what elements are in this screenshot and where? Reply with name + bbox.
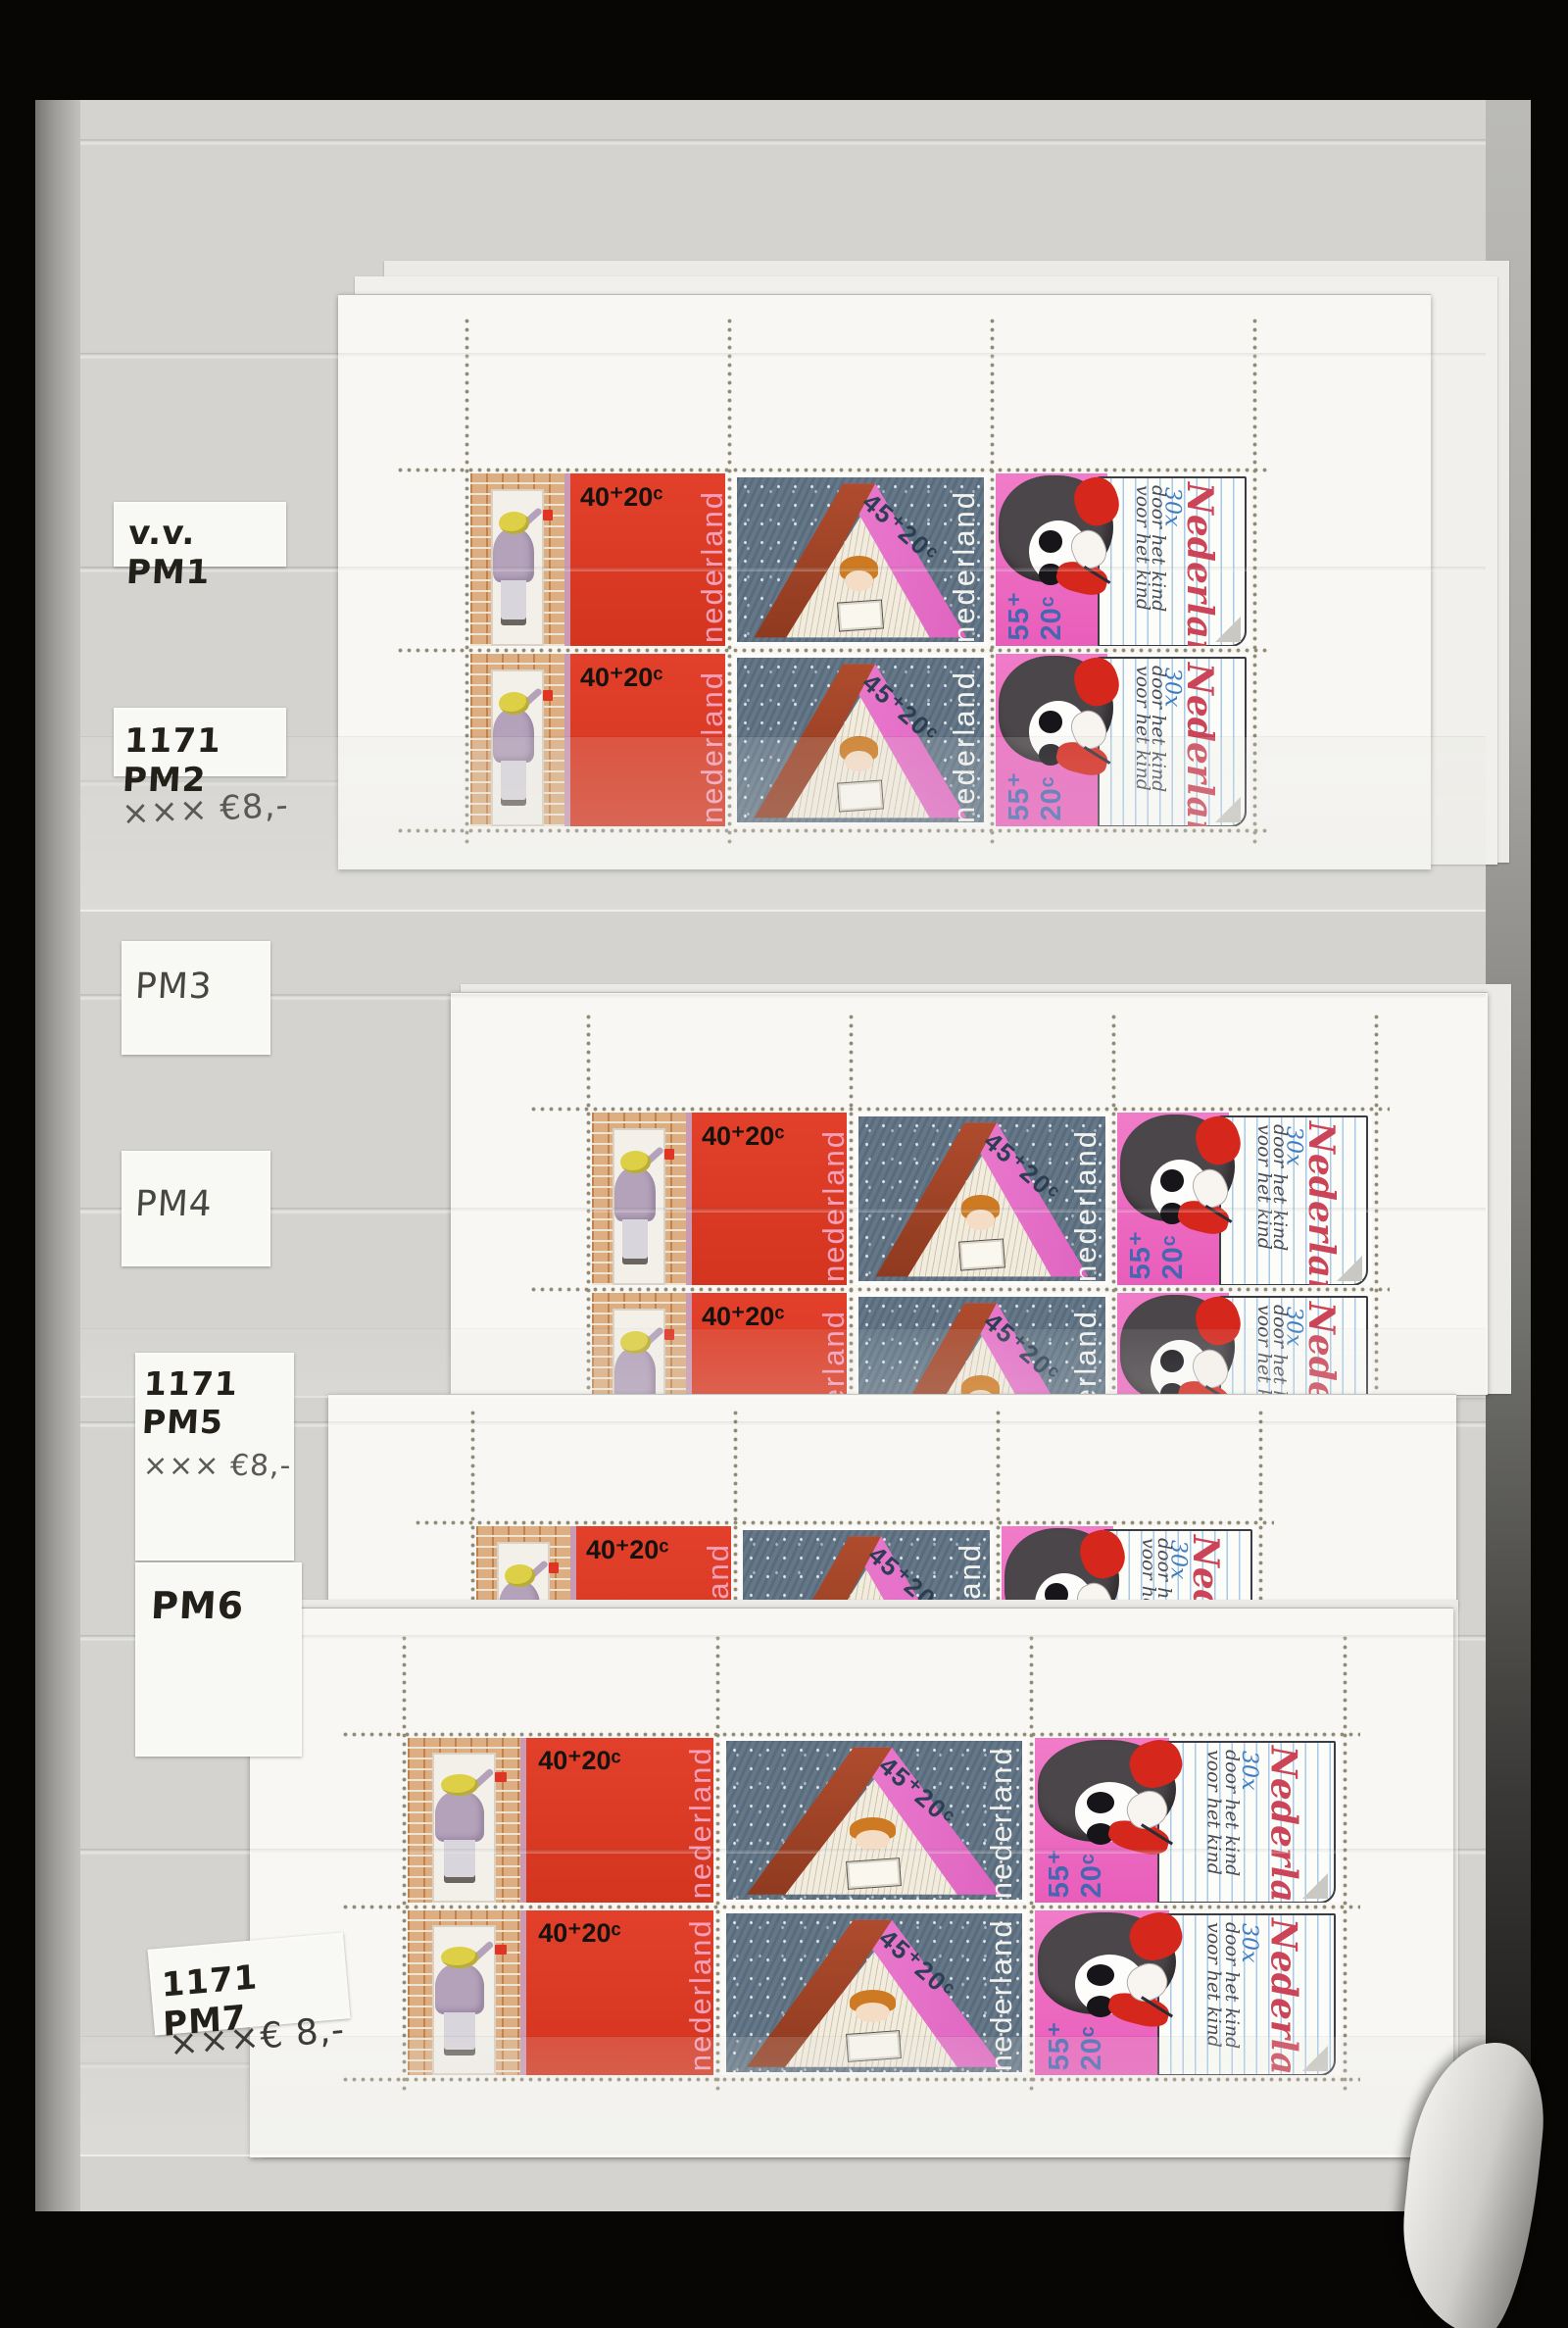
perforation-line xyxy=(396,647,1270,654)
slogan-door-het-kind: door het kind xyxy=(1221,1750,1243,1898)
denomination-text: 40⁺20ᶜ xyxy=(580,663,663,693)
stamp-55plus20: Nederland 30x door het kind voor het kin… xyxy=(1002,1526,1256,1609)
country-script-text: Nederland xyxy=(1300,1121,1342,1276)
country-script-text: Nederland xyxy=(1263,1746,1304,1894)
denomination-top: 55⁺ xyxy=(1043,1812,1076,1898)
glassine-strip-seam xyxy=(80,994,1486,999)
label-pm3-text: PM3 xyxy=(134,966,214,1007)
denomination-text: 40⁺20ᶜ xyxy=(580,482,663,513)
country-text: nederland xyxy=(683,1741,713,1899)
stamp-45plus20: 45⁺20ᶜ nederland xyxy=(739,1526,994,1609)
glassine-strip-seam xyxy=(80,567,1486,571)
denomination-top: 55⁺ xyxy=(1124,1190,1157,1280)
denomination-text: 40⁺20ᶜ xyxy=(702,1302,785,1332)
country-text: nederland xyxy=(984,1741,1019,1899)
stamp-40plus20: 40⁺20ᶜ nederland xyxy=(408,1738,713,1903)
denomination-text: 40⁺20ᶜ xyxy=(538,1746,621,1776)
glassine-strip-seam xyxy=(80,139,1486,144)
perforation-line xyxy=(529,1106,1390,1113)
child-legs xyxy=(444,1840,474,1883)
stamp-40plus20: 40⁺20ᶜ nederland xyxy=(476,1526,731,1609)
label-pm5: 1171 PM5 ××× €8,- xyxy=(135,1353,294,1560)
perforation-line xyxy=(341,1904,1360,1910)
perforation-line xyxy=(469,1409,476,1609)
child-eye-left xyxy=(1039,711,1061,733)
country-text: nederland xyxy=(947,477,982,643)
child-legs xyxy=(622,1219,648,1264)
perforation-line xyxy=(529,1286,1390,1293)
glassine-strip-seam xyxy=(80,1208,1486,1213)
slogan-voor-het-kind: voor het kind xyxy=(1202,1750,1224,1898)
denomination-text: 40⁺20ᶜ xyxy=(702,1121,785,1152)
open-reading-book xyxy=(837,600,884,632)
perforation-line xyxy=(1028,1634,1035,2095)
slogan-voor-het-kind: voor het kind xyxy=(1138,1538,1159,1609)
child-hair xyxy=(441,1947,477,1968)
child-hair xyxy=(620,1151,651,1173)
child-legs xyxy=(501,580,526,625)
price-note-pm5: ××× €8,- xyxy=(142,1449,292,1483)
stamp-55plus20: Nederland 30x door het kind voor het kin… xyxy=(996,473,1250,646)
stamp-45plus20: 45⁺20ᶜ nederland xyxy=(721,1738,1027,1903)
red-panel: 40⁺20ᶜ nederland xyxy=(564,473,725,646)
stamp-40plus20: 40⁺20ᶜ nederland xyxy=(470,473,725,646)
label-pm3: PM3 xyxy=(122,941,270,1055)
red-panel: 40⁺20ᶜ nederland xyxy=(686,1113,847,1285)
child-eye-left xyxy=(1039,530,1061,553)
child-body xyxy=(614,1167,656,1221)
child-body xyxy=(435,1963,484,2014)
paper-folded-corner xyxy=(1302,1873,1328,1899)
child-body xyxy=(493,528,534,582)
denomination-bottom: 20ᶜ xyxy=(1157,1190,1190,1280)
denomination-text: 55⁺ 20ᶜ xyxy=(1124,1190,1190,1280)
red-doorbell xyxy=(543,510,553,520)
child-hair xyxy=(499,512,529,534)
red-doorbell xyxy=(664,1149,674,1160)
red-doorbell xyxy=(495,1772,507,1782)
child-face xyxy=(856,1830,889,1850)
label-pm1-text: v.v. PM1 xyxy=(125,514,288,592)
denomination-bottom: 20ᶜ xyxy=(1076,1812,1108,1898)
glassine-strip-overlay xyxy=(80,737,1486,912)
country-text: nederland xyxy=(1068,1116,1103,1282)
denomination-top: 55⁺ xyxy=(1003,551,1036,641)
country-script-text: Nederland xyxy=(1185,1535,1226,1609)
perforation-line xyxy=(396,467,1270,473)
perforation-line xyxy=(1257,1409,1264,1609)
child-hair xyxy=(441,1774,477,1796)
country-script-text: Nederland xyxy=(1179,482,1220,637)
perforation-line xyxy=(401,1634,408,2095)
open-reading-book xyxy=(846,1857,902,1890)
red-panel: 40⁺20ᶜ nederland xyxy=(520,1738,713,1903)
denomination-text: 55⁺ 20ᶜ xyxy=(1043,1812,1108,1898)
stamp-55plus20: Nederland 30x door het kind voor het kin… xyxy=(1117,1113,1372,1285)
child-face xyxy=(856,2003,889,2022)
stockbook-photo: 40⁺20ᶜ nederland 45⁺20ᶜ nederland Nederl… xyxy=(0,0,1568,2328)
glassine-strip-seam xyxy=(80,353,1486,358)
label-pm4: PM4 xyxy=(122,1151,270,1266)
denomination-text: 40⁺20ᶜ xyxy=(538,1918,621,1949)
label-pm6-text: PM6 xyxy=(150,1584,245,1627)
perforation-line xyxy=(732,1409,739,1609)
label-pm6: PM6 xyxy=(135,1562,302,1757)
country-text: nederland xyxy=(695,477,725,643)
label-pm4-text: PM4 xyxy=(134,1184,214,1224)
red-doorbell xyxy=(543,690,553,701)
glassine-strip-overlay xyxy=(80,2037,1486,2156)
red-panel: 40⁺20ᶜ nederland xyxy=(570,1526,731,1609)
red-doorbell xyxy=(495,1945,507,1955)
open-reading-book xyxy=(958,1239,1005,1271)
slogan-voor-het-kind: voor het kind xyxy=(1253,1124,1275,1279)
child-body xyxy=(435,1791,484,1842)
album-spine-edge xyxy=(35,100,80,2211)
label-pm2: 1171 PM2 xyxy=(114,708,286,776)
slogan-voor-het-kind: voor het kind xyxy=(1132,485,1153,640)
country-text: nederland xyxy=(953,1530,988,1609)
label-pm1: v.v. PM1 xyxy=(114,502,286,567)
stamp-45plus20: 45⁺20ᶜ nederland xyxy=(733,473,988,646)
perforation-line xyxy=(341,1731,1360,1738)
denomination-text: 40⁺20ᶜ xyxy=(586,1535,669,1565)
country-text: nederland xyxy=(816,1116,847,1282)
denomination-text: 55⁺ 20ᶜ xyxy=(1003,551,1068,641)
stamp-45plus20: 45⁺20ᶜ nederland xyxy=(855,1113,1109,1285)
perforation-line xyxy=(1342,1634,1348,2095)
denomination-bottom: 20ᶜ xyxy=(1036,551,1068,641)
child-face xyxy=(845,570,873,591)
perforation-line xyxy=(995,1409,1002,1609)
child-hair xyxy=(505,1564,535,1587)
red-doorbell xyxy=(549,1562,559,1573)
glassine-strip-seam xyxy=(80,1849,1486,1854)
perforation-line xyxy=(714,1634,721,2095)
child-hair xyxy=(499,692,529,715)
child-eye-left xyxy=(1160,1169,1183,1192)
country-text: nederland xyxy=(701,1530,731,1609)
stamp-40plus20: 40⁺20ᶜ nederland xyxy=(592,1113,847,1285)
label-pm5-text: 1171 PM5 xyxy=(141,1364,296,1441)
perforation-line xyxy=(414,1519,1274,1526)
stamp-55plus20: Nederland 30x door het kind voor het kin… xyxy=(1035,1738,1341,1903)
